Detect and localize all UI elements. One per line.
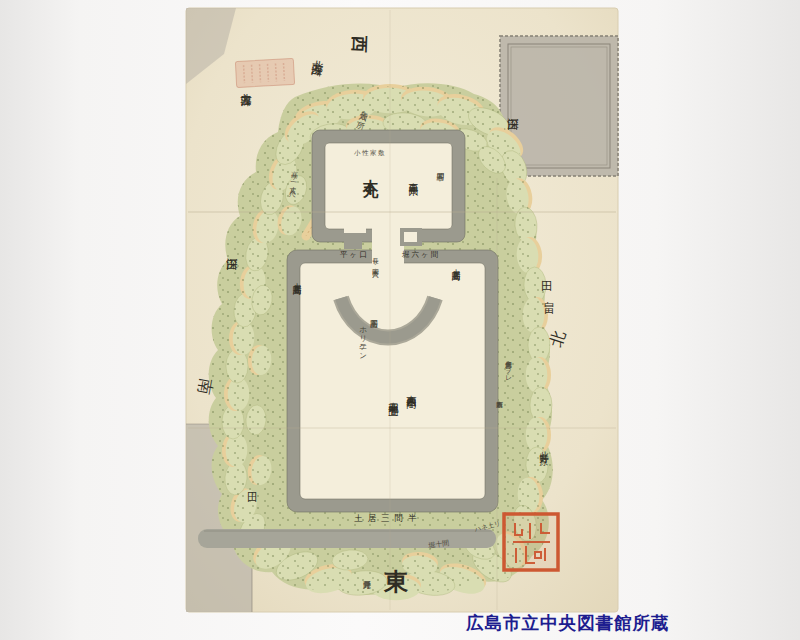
honmaru-courtyard [325,143,452,229]
credit-caption: 広島市立中央図書館所蔵 [466,611,670,635]
ninomaru-enclosure [287,250,498,512]
photo-of-historical-map: 西 北 南 東 北方深田 北方深田 深田 深田 田 畠 田 本丸 東西二十八間 … [0,0,800,640]
label-hori-2ken: ホリ二ケン [359,321,367,355]
label-north-fukada-1: 北方深田 [313,50,326,60]
moat-band [198,529,496,548]
label-hatake-6kasho: 畑六ヶ所 [359,105,369,116]
compass-east: 東 [384,570,408,594]
label-gate-note: 長サ十間巾六尺 [372,253,379,267]
label-ta-right: 田 [541,280,553,292]
label-gate-right: 堀六ヶ間 [402,251,440,259]
compass-west: 西 [350,35,368,53]
label-hata-note-1: 此方畑所タヲレ [505,356,512,378]
label-tozai-28ken: 東西二十八間 [409,175,419,181]
label-hatake-right: 畠 [543,302,555,314]
label-yashiki: 小性家敷 [354,150,386,157]
library-seal [504,514,558,570]
ninomaru-courtyard [300,263,485,499]
compass-south: 南 [195,377,214,396]
label-fukada-left: 深田 [226,248,238,254]
label-honmaru: 本丸 [363,166,379,174]
label-tozai-84ken: 東西八十四間 [406,387,416,393]
label-takasa-note: 高サ一丈八尺 [289,165,298,189]
map-artwork [0,0,800,640]
label-nanboku-45ken: 南北四十五間 [388,394,398,400]
label-gate-left: 平ヶ口 [340,251,369,259]
label-doi-3han: 土居三間半 [354,514,422,523]
label-doi-5ken-left: 土居高五間 [293,276,302,281]
label-nohara-right: 此方野原 [539,444,548,452]
label-north-fukada-2: 北方深田 [240,84,251,88]
label-fukada-right: 深田 [507,108,519,114]
label-ta-bottom-left: 田 [247,492,258,503]
label-doi-5ken-right: 土居高五間 [452,262,461,267]
